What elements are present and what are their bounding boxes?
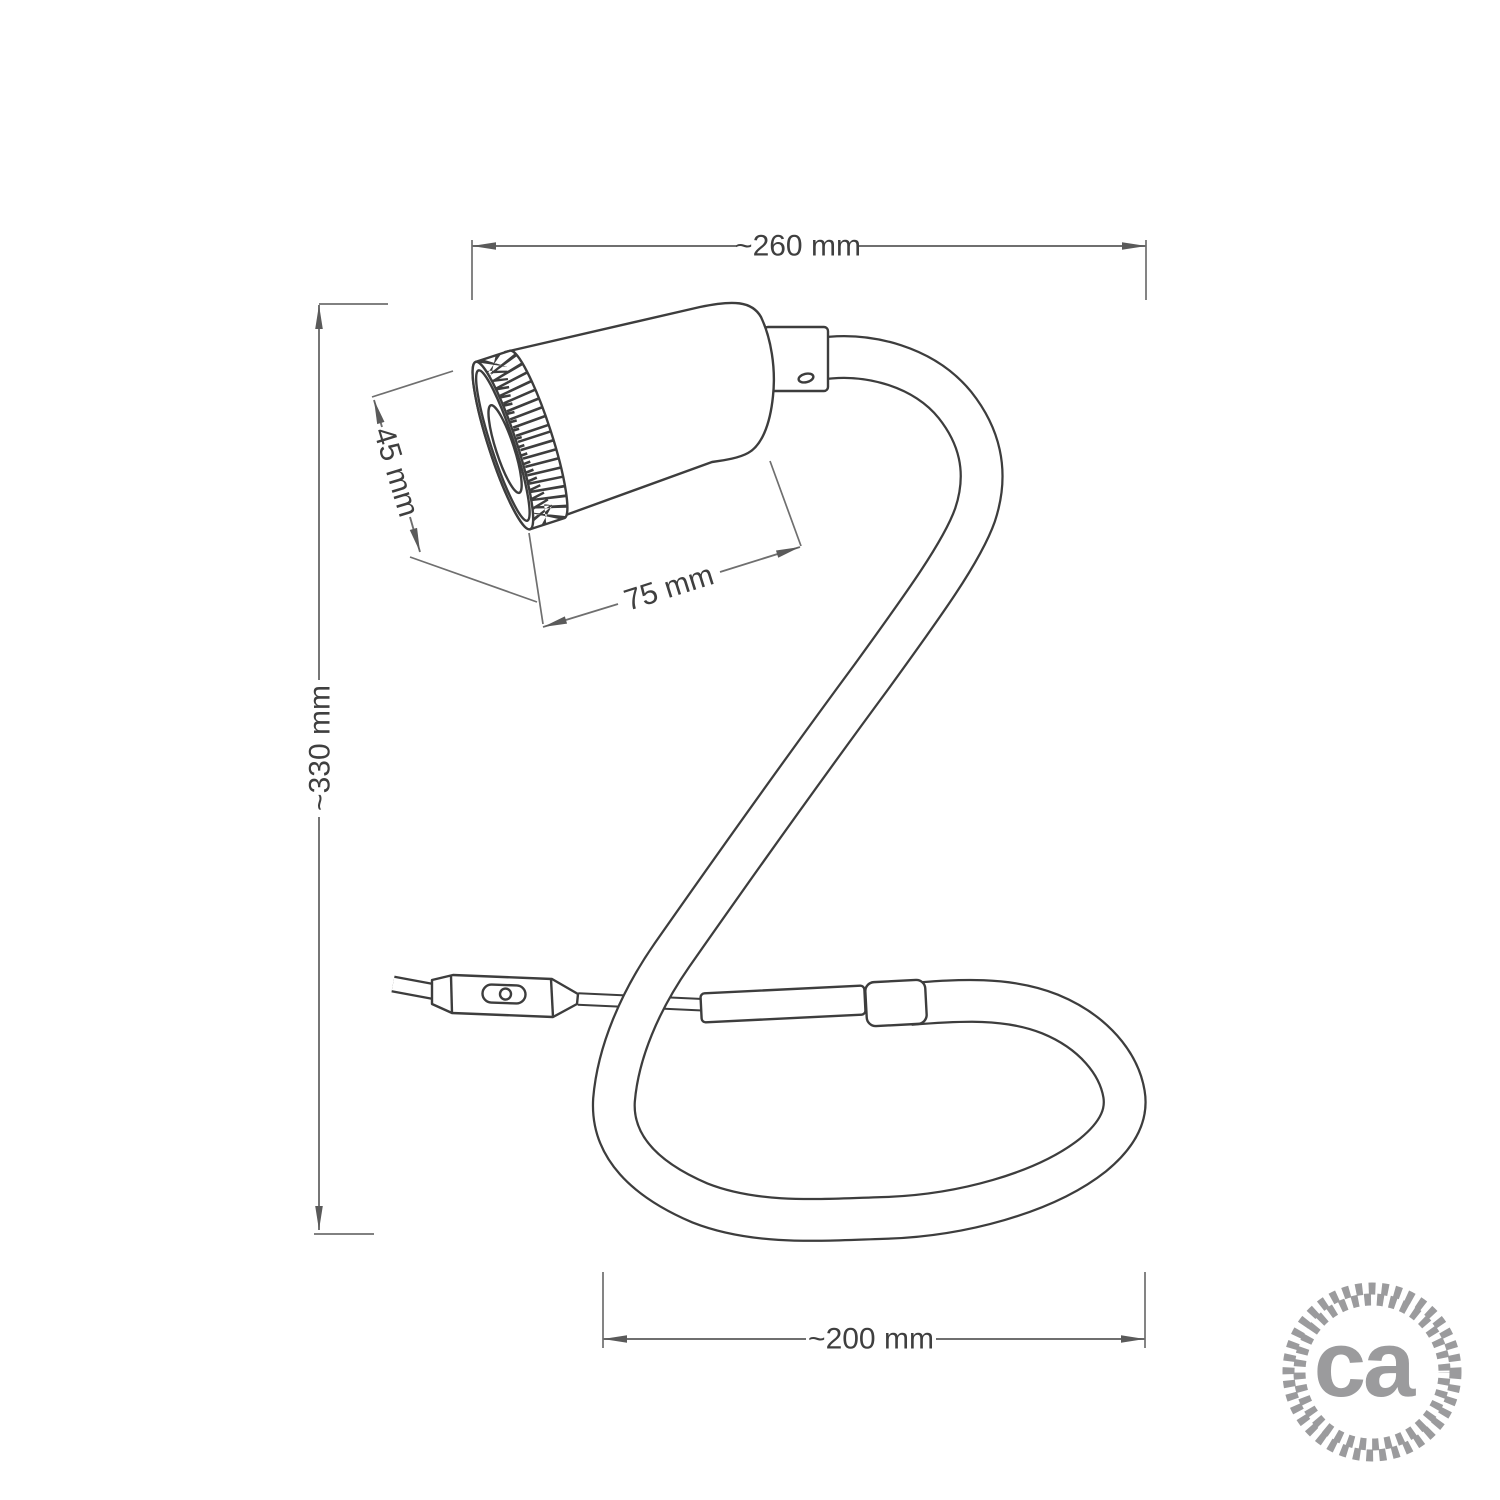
gooseneck-tube: [614, 357, 1125, 1220]
lamp-head: [462, 303, 828, 534]
inline-switch: [432, 975, 578, 1017]
cable-sleeve: [700, 986, 865, 1023]
technical-drawing-page: ~260 mm ~330 mm 45 mm 75 mm ~200 mm: [0, 0, 1500, 1500]
logo-text: ca: [1314, 1311, 1416, 1416]
lamp-technical-drawing: ~260 mm ~330 mm 45 mm 75 mm ~200 mm: [0, 0, 1500, 1500]
creative-cables-logo: ca: [1289, 1289, 1456, 1456]
switch-slot: [482, 984, 526, 1003]
head-length-label: 75 mm: [620, 558, 717, 617]
base-loop-width-label: ~200 mm: [808, 1323, 934, 1356]
tube-end-ring: [865, 979, 927, 1026]
overall-width-label: ~260 mm: [735, 230, 861, 263]
dimension-base-loop-width: ~200 mm: [603, 1272, 1145, 1356]
overall-height-label: ~330 mm: [304, 685, 337, 811]
head-diameter-label: 45 mm: [367, 423, 425, 520]
dimension-overall-width: ~260 mm: [472, 230, 1146, 301]
